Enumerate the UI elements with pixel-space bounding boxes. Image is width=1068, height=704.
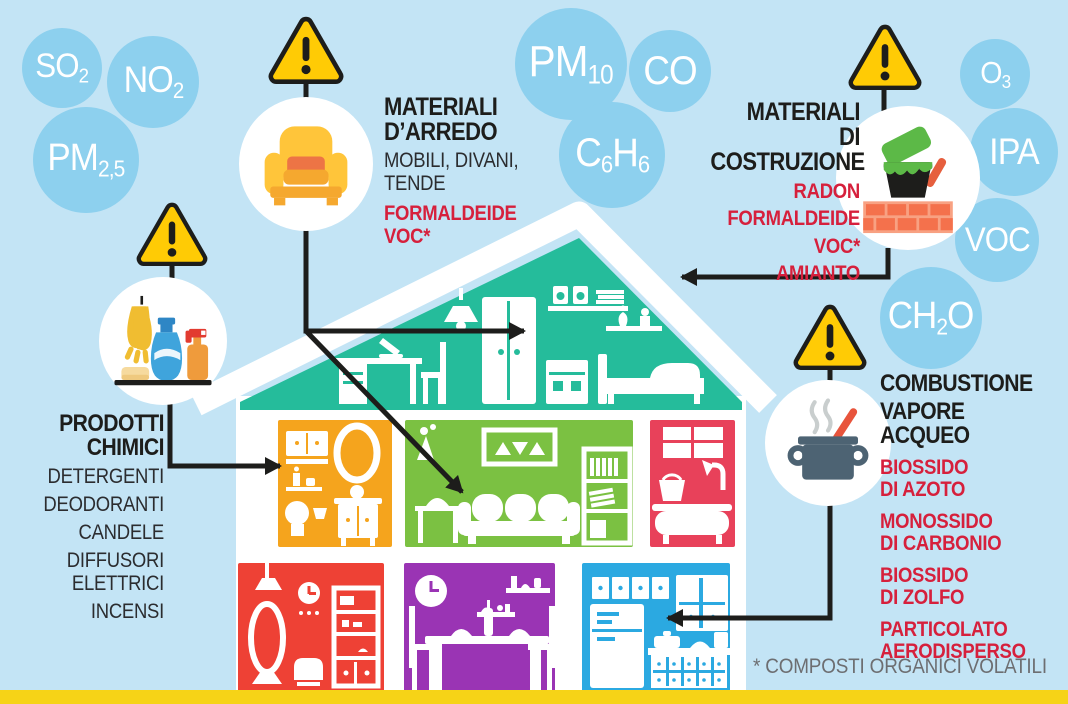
warning-triangle-icon [848,22,922,90]
section-sources: DETERGENTI DEODORANTI CANDELE DIFFUSORI … [36,465,164,624]
sofa-icon [458,494,580,544]
room-attic [240,238,742,410]
section-materiali-costruzione: MATERIALI DI COSTRUZIONE RADON FORMALDEI… [710,100,860,286]
pollutant-item: BIOSSIDO DI ZOLFO [880,565,1038,610]
arrow-arredo-sofa [306,331,462,492]
bubble-label: CH2O [888,295,974,340]
footnote-voc: * COMPOSTI ORGANICI VOLATILI [753,655,1047,679]
warning-triangle-icon [136,200,208,266]
house-body [236,396,746,692]
pollutant-bubble-so2: SO2 [22,28,102,108]
warning-triangle-icon [793,302,867,370]
cleaning-products-icon [111,295,215,387]
combustion-source-circle [765,380,891,506]
title-line: MATERIALI [384,95,551,120]
room-dressing-red [238,563,384,692]
pollutant-item: BIOSSIDO DI AZOTO [880,457,1038,502]
chair-icon [421,342,446,404]
bubble-label: IPA [989,131,1039,173]
armchair-icon [259,117,353,211]
source-item: DIFFUSORI ELETTRICI [36,549,164,595]
pollutant-line: VOC* [384,226,551,248]
subtitle-line: VAPORE [880,400,1038,424]
pollutant-line: DI AZOTO [880,479,1038,501]
bubble-label: CO [643,49,696,94]
pollutant-line: FORMALDEIDE [384,203,551,225]
source-line: INCENSI [36,600,164,623]
bubble-label: NO2 [123,59,183,104]
source-line: DETERGENTI [36,465,164,488]
bubble-label: C6H6 [575,131,649,180]
room-bathroom-red [650,420,735,547]
room-dining-purple [404,563,555,692]
furniture-source-circle [239,97,373,231]
title-line: MATERIALI [710,100,860,125]
pollutant-bubble-o3: O3 [960,39,1030,109]
title-line: CHIMICI [36,436,164,460]
speaker-shelf-icon [548,286,628,311]
source-item: DETERGENTI [36,465,164,488]
nightstand-icon [546,360,588,404]
pollutant-line: PARTICOLATO [880,619,1038,641]
source-item: DEODORANTI [36,493,164,516]
section-title: MATERIALI D’ARREDO [384,95,551,145]
chemical-source-circle [99,277,227,405]
warning-triangle-icon [268,14,344,84]
section-materiali-arredo: MATERIALI D’ARREDO MOBILI, DIVANI, TENDE… [384,95,551,248]
source-item: INCENSI [36,600,164,623]
pollutant-line: AMIANTO [710,263,860,285]
pollutant-line: DI CARBONIO [880,533,1038,555]
section-title: COMBUSTIONE [880,372,1038,396]
pendant-lamp-icon [444,288,478,331]
section-pollutants: FORMALDEIDE VOC* [384,203,551,248]
pollutant-line: BIOSSIDO [880,457,1038,479]
indoor-pollution-infographic: SO2 NO2 PM2,5 PM10 CO C6H6 O3 IPA VOC CH… [0,0,1068,704]
desk-icon [336,338,422,404]
pollutant-bubble-pm25: PM2,5 [33,107,139,213]
section-title: PRODOTTI CHIMICI [36,412,164,460]
pollutant-bubble-co: CO [629,30,711,112]
source-line: DEODORANTI [36,493,164,516]
pollutant-line: MONOSSIDO [880,511,1038,533]
wardrobe-icon [482,297,536,404]
pollutant-bubble-ch2o: CH2O [880,267,982,369]
pollutant-bubble-ipa: IPA [970,108,1058,196]
section-title: MATERIALI DI COSTRUZIONE [710,100,860,175]
bed-icon [598,354,704,404]
subtitle-line: ACQUEO [880,424,1038,448]
section-sources: MOBILI, DIVANI, TENDE [384,149,551,195]
section-pollutants: BIOSSIDO DI AZOTO MONOSSIDO DI CARBONIO … [880,457,1038,664]
plant-shelf-icon [606,306,662,332]
source-line: ELETTRICI [36,572,164,595]
room-living-green [405,420,633,547]
section-prodotti-chimici: PRODOTTI CHIMICI DETERGENTI DEODORANTI C… [36,412,164,624]
title-line: COMBUSTIONE [880,372,1038,396]
pollutant-bubble-c6h6: C6H6 [559,102,665,208]
room-bathroom-orange [278,420,392,547]
paint-bricks-icon [852,121,964,235]
attic-furniture [336,286,704,404]
arrow-combustione-kitchen [668,504,830,618]
pollutant-line: FORMALDEIDE [710,208,860,230]
title-line: DI COSTRUZIONE [710,125,860,175]
title-line: PRODOTTI [36,412,164,436]
arrow-chimici-bathroom [170,402,280,466]
bubble-label: O3 [980,55,1010,93]
pollutant-line: VOC* [710,236,860,258]
bubble-label: SO2 [36,47,89,89]
bubble-label: PM10 [529,37,613,90]
pollutant-item: MONOSSIDO DI CARBONIO [880,511,1038,556]
section-subtitle: VAPORE ACQUEO [880,400,1038,448]
title-line: D’ARREDO [384,120,551,145]
source-line: DIFFUSORI [36,549,164,572]
pollutant-line: BIOSSIDO [880,565,1038,587]
source-item: CANDELE [36,521,164,544]
bubble-label: VOC [964,221,1029,260]
section-combustione: COMBUSTIONE VAPORE ACQUEO BIOSSIDO DI AZ… [880,372,1038,664]
source-line: CANDELE [36,521,164,544]
pollutant-line: DI ZOLFO [880,587,1038,609]
source-line: TENDE [384,172,551,195]
bubble-label: PM2,5 [47,137,124,182]
pollutant-bubble-no2: NO2 [107,36,199,128]
footer-strip [0,690,1068,704]
room-kitchen-blue [582,563,730,692]
cooking-pot-icon [778,396,878,490]
pollutant-line: RADON [710,181,860,203]
source-line: MOBILI, DIVANI, [384,149,551,172]
section-pollutants: RADON FORMALDEIDE VOC* AMIANTO [710,181,860,286]
